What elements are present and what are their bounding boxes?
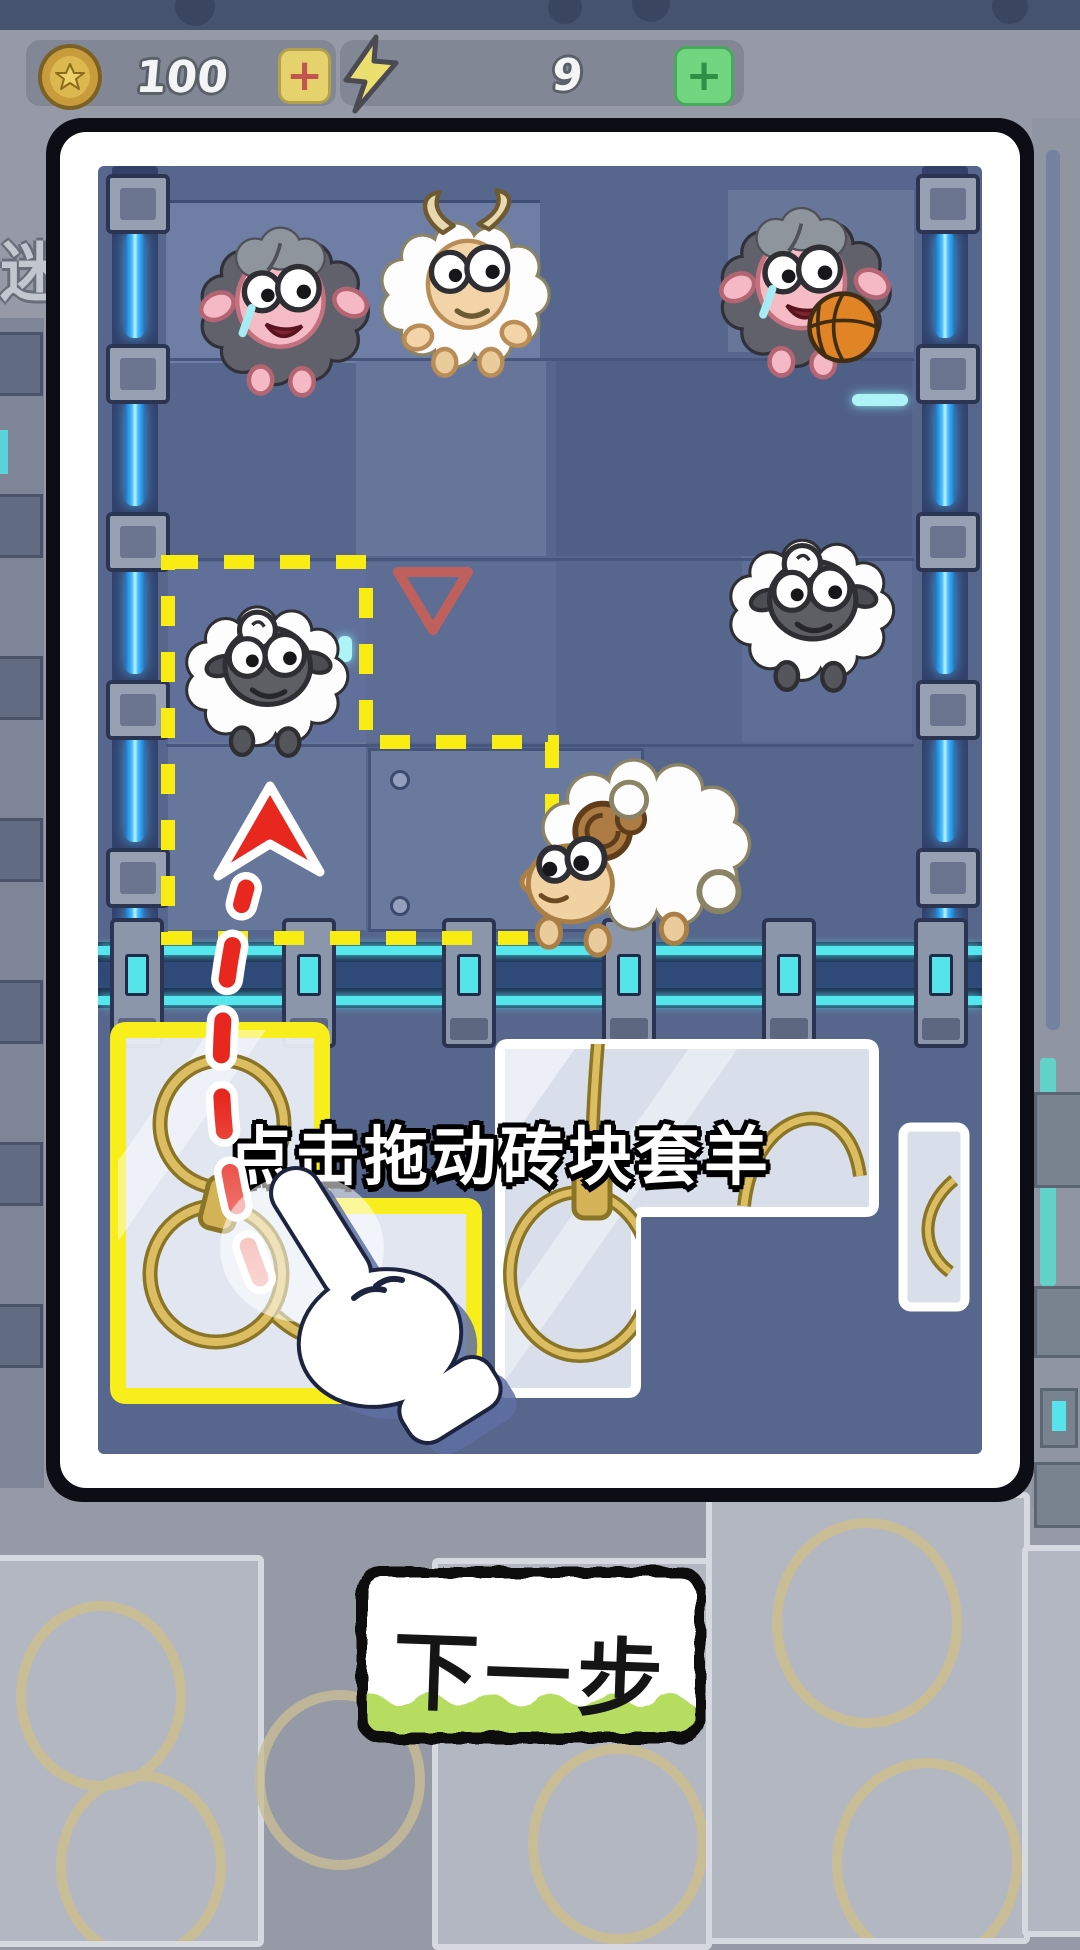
- machine-block: [0, 818, 43, 882]
- energy-count: 9: [550, 50, 585, 101]
- add-coins-button[interactable]: +: [278, 48, 331, 104]
- connector-box: [1034, 1462, 1080, 1528]
- connector-box: [1034, 1092, 1080, 1188]
- dim-tile-piece: [706, 1492, 1030, 1944]
- coin-count: 100: [134, 52, 230, 103]
- plus-icon: +: [686, 54, 723, 98]
- next-step-button[interactable]: 下一步: [348, 1560, 714, 1752]
- machine-block: [0, 494, 43, 558]
- lightning-icon: [340, 34, 404, 114]
- dim-tile-piece: [0, 1555, 264, 1947]
- dim-tube: [1046, 150, 1060, 1030]
- clipped-label: 迷: [0, 222, 46, 312]
- next-step-label: 下一步: [391, 1601, 671, 1736]
- machine-block: [0, 1304, 43, 1368]
- connector-box: [1040, 1388, 1078, 1448]
- machine-block: [0, 332, 43, 396]
- machine-block: [0, 980, 43, 1044]
- top-status-strip: [0, 0, 1080, 30]
- connector-box: [1034, 1286, 1080, 1358]
- machine-block: [0, 656, 43, 720]
- coin-star-icon: [38, 44, 102, 110]
- plus-icon: +: [286, 54, 323, 98]
- hand-cursor-icon: [258, 1156, 518, 1454]
- teal-light: [0, 430, 8, 474]
- add-energy-button[interactable]: +: [674, 46, 734, 106]
- machine-block: [0, 1142, 43, 1206]
- game-board: 点击拖动砖块套羊: [98, 166, 982, 1454]
- dim-tile-piece: [1022, 1545, 1080, 1937]
